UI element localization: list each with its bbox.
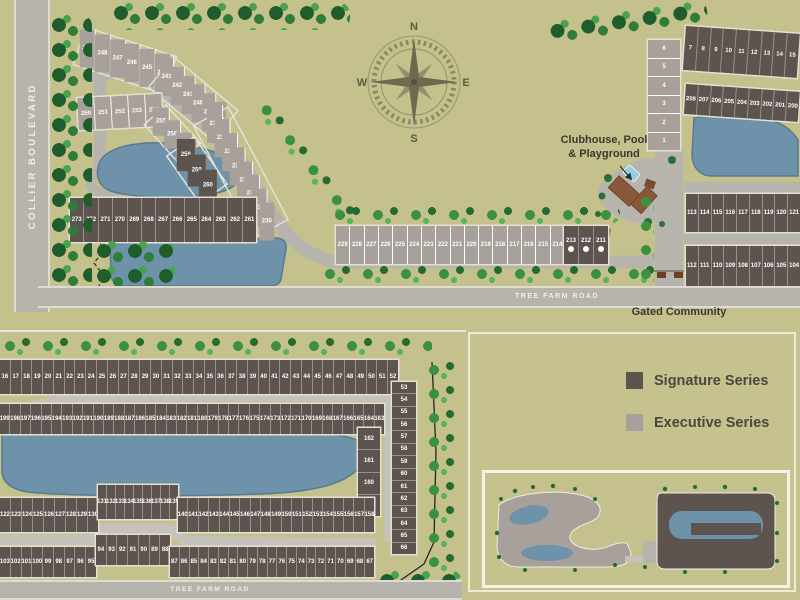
lot: 110	[712, 246, 725, 286]
signature-series-label: Signature Series	[654, 373, 768, 389]
lot: 47	[334, 360, 345, 394]
lot: 3	[648, 96, 680, 115]
lot: 66	[392, 543, 416, 554]
lot: 220	[465, 226, 479, 264]
lot: 268	[142, 198, 156, 242]
lot: 195	[42, 404, 52, 434]
lot: 265	[185, 198, 199, 242]
lot: 143	[209, 498, 219, 532]
lot: 151	[292, 498, 302, 532]
lot: 58	[392, 444, 416, 456]
lot: 142	[199, 498, 209, 532]
lot: 179	[208, 404, 218, 434]
lot: 147	[251, 498, 261, 532]
lot: 221	[451, 226, 465, 264]
collier-boulevard-road: COLLIER BOULEVARD	[14, 0, 50, 312]
lot: 48	[345, 360, 356, 394]
lot: 123	[11, 498, 22, 532]
lot: 104	[788, 246, 800, 286]
lot: 189	[104, 404, 114, 434]
signature-series-swatch	[626, 372, 643, 389]
lot: 99	[43, 547, 54, 577]
detail-bottom-a: 1031021011009998979695	[0, 547, 96, 577]
lot: 187	[125, 404, 135, 434]
lot: 175	[250, 404, 260, 434]
lot-row-long-end: 213212211	[564, 226, 608, 264]
clubhouse-label: Clubhouse, Pool& Playground	[548, 134, 660, 162]
lot: 112	[686, 246, 699, 286]
lot: 108	[737, 246, 750, 286]
lot: 43	[291, 360, 302, 394]
lot: 50	[367, 360, 378, 394]
gate	[674, 272, 683, 278]
lot: 23	[75, 360, 86, 394]
lot: 266	[171, 198, 185, 242]
lot: 178	[219, 404, 229, 434]
lot: 188	[114, 404, 124, 434]
lot: 246	[125, 44, 141, 82]
lot: 170	[302, 404, 312, 434]
lot: 36	[216, 360, 227, 394]
lot: 226	[379, 226, 393, 264]
tree-farm-road: TREE FARM ROAD	[38, 286, 800, 308]
lot: 33	[183, 360, 194, 394]
tree-farm-road-bottom-label: TREE FARM ROAD	[150, 586, 270, 593]
site-plan: 249248247246245244 243242241240239238 23…	[0, 0, 800, 600]
lot: 88	[160, 535, 170, 565]
lot: 193	[62, 404, 72, 434]
tree-farm-road-label: TREE FARM ROAD	[487, 293, 627, 300]
lot: 197	[21, 404, 31, 434]
lot: 34	[194, 360, 205, 394]
lot: 196	[31, 404, 41, 434]
executive-series-swatch	[626, 414, 643, 431]
lot: 183	[167, 404, 177, 434]
detail-row3-a: 122123124125126127128129130	[0, 498, 98, 532]
lot: 38	[237, 360, 248, 394]
lot: 27	[119, 360, 130, 394]
lot: 150	[282, 498, 292, 532]
lot: 2	[648, 114, 680, 133]
lot-row-sig-270s: 273272271270269268267266265264263262261	[70, 198, 256, 242]
lot: 49	[356, 360, 367, 394]
compass-e: E	[462, 77, 469, 89]
lot: 126	[44, 498, 55, 532]
lot: 69	[346, 547, 356, 577]
lot: 19	[32, 360, 43, 394]
lot: 4	[648, 77, 680, 96]
lot: 185	[146, 404, 156, 434]
lot: 252	[111, 96, 130, 129]
lot: 84	[199, 547, 209, 577]
lot: 194	[52, 404, 62, 434]
tree-cluster	[95, 240, 175, 290]
lot: 269	[128, 198, 142, 242]
lot: 35	[205, 360, 216, 394]
lot: 74	[297, 547, 307, 577]
lot: 174	[260, 404, 270, 434]
legend-panel: Signature Series Executive Series	[468, 332, 796, 592]
legend-item-executive: Executive Series	[626, 414, 769, 431]
lot: 158	[365, 498, 374, 532]
lot: 199	[0, 404, 10, 434]
tree-strip	[0, 334, 432, 360]
lot: 225	[393, 226, 407, 264]
lot: 218	[493, 226, 507, 264]
lot: 114	[699, 194, 712, 232]
lot: 153	[313, 498, 323, 532]
lot: 80	[238, 547, 248, 577]
lot: 91	[128, 535, 139, 565]
lot: 102	[11, 547, 22, 577]
lot: 176	[239, 404, 249, 434]
detail-right-col: 5354555657585960616263646566	[392, 382, 416, 554]
lot: 18	[22, 360, 33, 394]
compass-s: S	[410, 133, 417, 144]
lot: 222	[436, 226, 450, 264]
lot: 120	[775, 194, 788, 232]
lot: 28	[129, 360, 140, 394]
lot: 100	[32, 547, 43, 577]
lot: 83	[209, 547, 219, 577]
lot: 26	[108, 360, 119, 394]
lot: 68	[356, 547, 366, 577]
detail-bottom-b: 94939291908988	[96, 535, 170, 565]
lot: 24	[86, 360, 97, 394]
lot: 154	[323, 498, 333, 532]
lot: 223	[422, 226, 436, 264]
lot: 94	[96, 535, 107, 565]
lot: 191	[83, 404, 93, 434]
lot: 109	[724, 246, 737, 286]
lot: 107	[750, 246, 763, 286]
lot: 46	[323, 360, 334, 394]
lot: 101	[22, 547, 33, 577]
lot: 155	[334, 498, 344, 532]
lot: 190	[94, 404, 104, 434]
lot: 89	[150, 535, 161, 565]
collier-boulevard-label: COLLIER BOULEVARD	[27, 83, 38, 229]
lot: 156	[344, 498, 354, 532]
lot: 57	[392, 431, 416, 443]
lot: 16	[0, 360, 11, 394]
lot: 53	[392, 382, 416, 394]
lot: 149	[271, 498, 281, 532]
lot: 148	[261, 498, 271, 532]
lot: 111	[699, 246, 712, 286]
lot: 181	[187, 404, 197, 434]
lot: 78	[258, 547, 268, 577]
lot: 200	[786, 91, 800, 122]
lot: 182	[177, 404, 187, 434]
minimap-artwork	[485, 473, 781, 579]
lot: 87	[170, 547, 180, 577]
executive-series-label: Executive Series	[654, 415, 769, 431]
lot: 228	[350, 226, 364, 264]
lot: 162	[358, 428, 380, 450]
lot: 93	[107, 535, 118, 565]
lake	[692, 115, 798, 176]
lot: 184	[156, 404, 166, 434]
lot: 213	[564, 226, 579, 264]
lot: 122	[0, 498, 11, 532]
lot: 216	[522, 226, 536, 264]
lot: 152	[303, 498, 313, 532]
gated-community-label: Gated Community	[624, 306, 734, 320]
lot: 247	[110, 39, 126, 77]
lot: 31	[162, 360, 173, 394]
lot: 113	[686, 194, 699, 232]
lot: 56	[392, 419, 416, 431]
lot: 141	[188, 498, 198, 532]
overview-minimap	[482, 470, 790, 588]
lot: 73	[307, 547, 317, 577]
lot: 97	[65, 547, 76, 577]
lot: 118	[750, 194, 763, 232]
lot: 211	[594, 226, 608, 264]
compass-n: N	[410, 21, 418, 33]
lot: 253	[128, 95, 147, 128]
lot: 40	[259, 360, 270, 394]
lot: 106	[763, 246, 776, 286]
lot: 71	[326, 547, 336, 577]
lot: 251	[94, 96, 113, 129]
lot: 271	[99, 198, 113, 242]
lake	[2, 430, 366, 496]
lot: 85	[190, 547, 200, 577]
lot: 219	[479, 226, 493, 264]
lot: 215	[536, 226, 550, 264]
lot: 81	[229, 547, 239, 577]
tree-strip	[320, 262, 666, 286]
lot-row-long: 2292282272262252242232222212202192182172…	[336, 226, 564, 264]
detail-plan: 1617181920212223242526272829303132333435…	[0, 330, 466, 600]
compass-w: W	[357, 77, 368, 89]
lot: 116	[724, 194, 737, 232]
lot: 65	[392, 530, 416, 542]
lot: 146	[240, 498, 250, 532]
lot: 168	[323, 404, 333, 434]
lot: 248	[95, 34, 111, 72]
lot: 128	[66, 498, 77, 532]
lot: 60	[392, 469, 416, 481]
lot: 77	[268, 547, 278, 577]
lot: 63	[392, 506, 416, 518]
lot: 90	[139, 535, 150, 565]
lot: 5	[648, 59, 680, 78]
lot: 29	[140, 360, 151, 394]
lot: 177	[229, 404, 239, 434]
compass-rose: N E S W	[356, 16, 472, 144]
lot: 75	[287, 547, 297, 577]
lot: 119	[763, 194, 776, 232]
lot: 41	[270, 360, 281, 394]
lot: 261	[243, 198, 256, 242]
lot: 86	[180, 547, 190, 577]
lot: 61	[392, 481, 416, 493]
lot: 82	[219, 547, 229, 577]
lot: 270	[113, 198, 127, 242]
lot: 166	[343, 404, 353, 434]
lot: 105	[775, 246, 788, 286]
lot: 171	[291, 404, 301, 434]
legend-item-signature: Signature Series	[626, 372, 768, 389]
lot: 260	[199, 170, 217, 202]
tree-strip	[330, 203, 620, 225]
lot: 140	[178, 498, 188, 532]
lot: 263	[214, 198, 228, 242]
lot: 103	[0, 547, 11, 577]
lot: 72	[316, 547, 326, 577]
lot: 167	[333, 404, 343, 434]
master-plan: 249248247246245244 243242241240239238 23…	[0, 0, 800, 330]
lot: 229	[336, 226, 350, 264]
lot: 25	[97, 360, 108, 394]
lot: 96	[75, 547, 86, 577]
lot: 44	[302, 360, 313, 394]
lot: 67	[365, 547, 374, 577]
lot: 144	[220, 498, 230, 532]
lot: 37	[226, 360, 237, 394]
lot: 172	[281, 404, 291, 434]
lot: 30	[151, 360, 162, 394]
lot: 214	[551, 226, 564, 264]
tree-farm-road-bottom: TREE FARM ROAD	[0, 580, 462, 600]
detail-row1: 1617181920212223242526272829303132333435…	[0, 360, 398, 394]
lot: 129	[77, 498, 88, 532]
lot: 124	[22, 498, 33, 532]
detail-row3-c: 1401411421431441451461471481491501511521…	[178, 498, 374, 532]
lot: 51	[377, 360, 388, 394]
lot: 42	[280, 360, 291, 394]
lot: 22	[65, 360, 76, 394]
lot: 32	[173, 360, 184, 394]
lot: 55	[392, 407, 416, 419]
lot: 21	[54, 360, 65, 394]
lot: 59	[392, 456, 416, 468]
detail-row3-b: 131132133134135136137138139	[98, 485, 178, 519]
lot-row-ne-113s: 113114115116117118119120121	[686, 194, 800, 232]
tree-strip	[50, 14, 92, 300]
lot: 180	[198, 404, 208, 434]
lot: 192	[73, 404, 83, 434]
lot: 115	[712, 194, 725, 232]
lot: 217	[508, 226, 522, 264]
lot: 198	[10, 404, 20, 434]
lot: 98	[54, 547, 65, 577]
lot: 186	[135, 404, 145, 434]
lot: 173	[271, 404, 281, 434]
lot: 267	[156, 198, 170, 242]
tree-strip	[112, 2, 350, 30]
lot: 39	[248, 360, 259, 394]
lot: 224	[408, 226, 422, 264]
lot: 145	[230, 498, 240, 532]
lot: 127	[55, 498, 66, 532]
lot: 117	[737, 194, 750, 232]
lot: 62	[392, 493, 416, 505]
lot: 121	[788, 194, 800, 232]
lot-row-ne-112s: 112111110109108107106105104	[686, 246, 800, 286]
detail-bottom-c: 8786858483828180797877767574737271706968…	[170, 547, 374, 577]
lot: 92	[117, 535, 128, 565]
lot: 125	[33, 498, 44, 532]
tree-strip	[636, 190, 654, 290]
lot: 54	[392, 394, 416, 406]
lot: 76	[277, 547, 287, 577]
detail-row2: 1991981971961951941931921911901891881871…	[0, 404, 384, 434]
lot: 70	[336, 547, 346, 577]
tree-strip	[424, 358, 458, 572]
lot: 212	[579, 226, 594, 264]
lot: 45	[313, 360, 324, 394]
lot: 264	[200, 198, 214, 242]
lot: 95	[86, 547, 96, 577]
lot: 160	[358, 473, 380, 495]
lot: 6	[648, 40, 680, 59]
lot: 79	[248, 547, 258, 577]
lot-row-ne-top: 789101112131415	[683, 26, 800, 78]
lot: 64	[392, 518, 416, 530]
lot: 230	[259, 203, 274, 241]
lot: 161	[358, 450, 380, 472]
lot: 227	[365, 226, 379, 264]
lot: 20	[43, 360, 54, 394]
lot: 157	[354, 498, 364, 532]
lot: 262	[228, 198, 242, 242]
lot: 169	[312, 404, 322, 434]
lot: 17	[11, 360, 22, 394]
